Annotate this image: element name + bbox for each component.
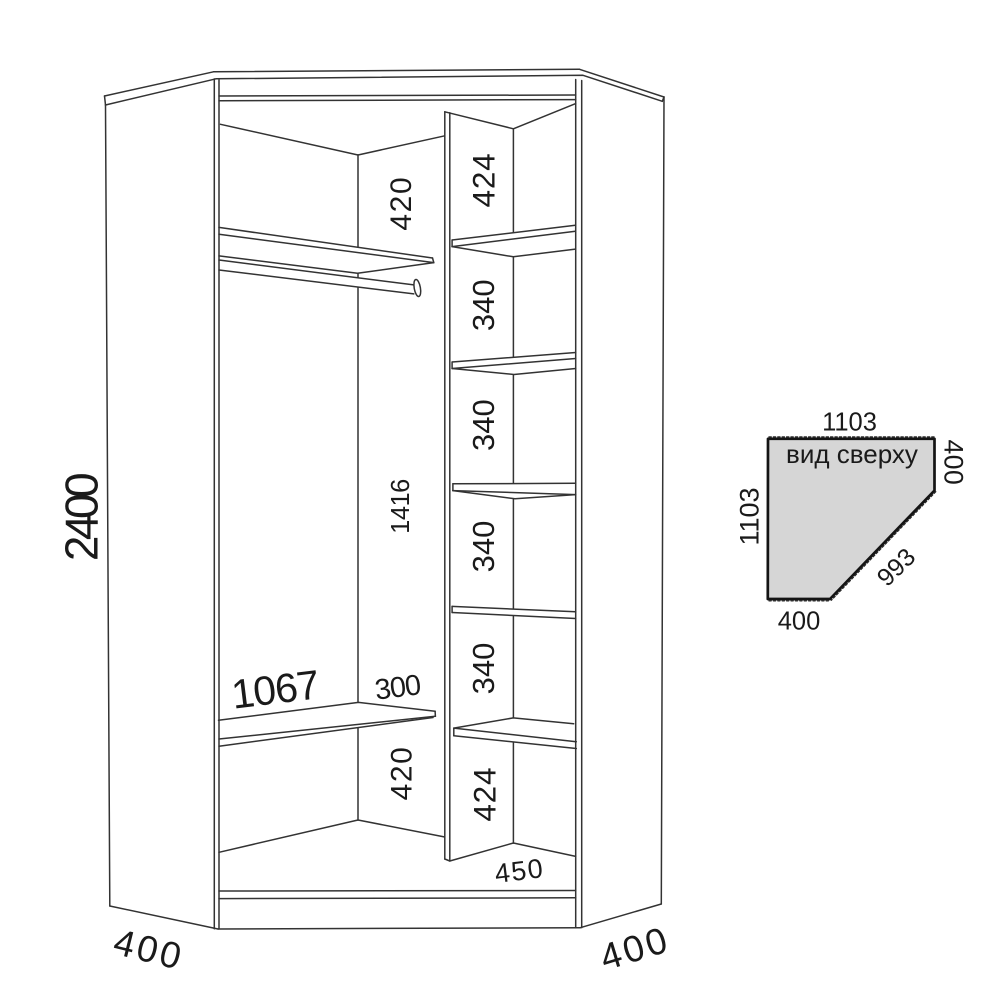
svg-text:1103: 1103 xyxy=(735,487,765,545)
svg-text:400: 400 xyxy=(595,919,675,979)
svg-text:вид сверху: вид сверху xyxy=(786,439,918,469)
svg-text:400: 400 xyxy=(110,921,189,978)
svg-text:340: 340 xyxy=(466,399,501,451)
svg-text:1103: 1103 xyxy=(822,409,877,437)
svg-text:400: 400 xyxy=(778,608,821,636)
svg-text:400: 400 xyxy=(939,440,969,486)
svg-text:1416: 1416 xyxy=(387,479,415,534)
svg-text:340: 340 xyxy=(466,279,501,331)
svg-text:2400: 2400 xyxy=(56,474,108,561)
svg-text:424: 424 xyxy=(466,767,502,822)
svg-text:424: 424 xyxy=(466,153,502,208)
svg-text:420: 420 xyxy=(385,176,418,231)
svg-text:340: 340 xyxy=(466,521,501,573)
svg-text:450: 450 xyxy=(493,853,546,889)
svg-text:300: 300 xyxy=(373,669,422,706)
svg-text:420: 420 xyxy=(385,746,418,801)
svg-text:340: 340 xyxy=(466,643,501,695)
